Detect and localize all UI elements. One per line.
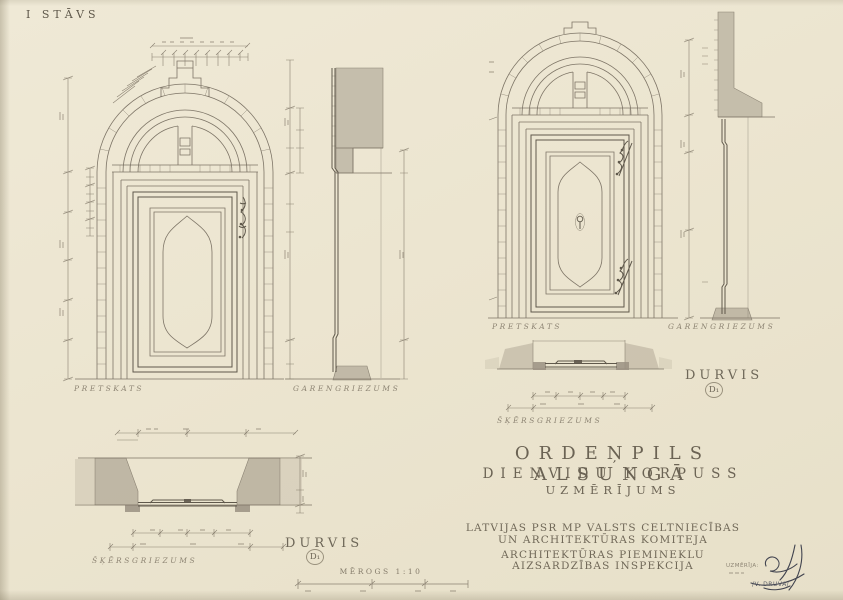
door2-section-label: GARENGRIEZUMS (668, 322, 775, 331)
signature-caption: UZMĒRĪJA: (726, 563, 759, 569)
right-door-elevation (488, 22, 694, 320)
door2-plan-label: ŠĶĒRSGRIEZUMS (497, 416, 602, 425)
left-door-elevation (75, 61, 284, 379)
door1-name-label: DURVIS (285, 536, 363, 551)
title-line2: DIENVIDU KORPUSS (432, 466, 794, 482)
right-door-plan (485, 340, 672, 412)
right-door-section (700, 12, 780, 320)
door1-handle-detail (240, 223, 243, 226)
linework-svg (0, 0, 843, 600)
scale-label: MĒROGS 1:10 (320, 567, 442, 576)
floor-label: I STĀVS (26, 8, 100, 21)
door2-elevation-label: PRETSKATS (492, 322, 562, 331)
door1-elevation-label: PRETSKATS (74, 384, 144, 393)
scale-bar (295, 579, 468, 589)
door1-handle-detail (239, 236, 242, 239)
keyhole-icon (577, 216, 583, 222)
door2-mark-badge: D₁ (705, 382, 723, 398)
left-door-section (285, 60, 409, 380)
door1-section-label: GARENGRIEZUMS (293, 384, 400, 393)
door1-plan-label: ŠĶĒRSGRIEZUMS (92, 556, 197, 565)
signature-name: /V. DRUVA/ (752, 581, 789, 588)
committee-line2: UN ARCHITEKTŪRAS KOMITEJA (427, 534, 779, 546)
door1-mark-badge: D₁ (306, 549, 324, 565)
committee-line1: LATVIJAS PSR MP VALSTS CELTNIECĪBAS (427, 522, 779, 534)
left-door-plan (75, 429, 312, 551)
door1-handle-detail (241, 209, 244, 212)
title-line3: UZMĒRĪJUMS (432, 483, 794, 497)
door2-name-label: DURVIS (685, 368, 763, 383)
drawing-sheet: I STĀVS PRETSKATS GARENGRIEZUMS ŠĶĒRSGRI… (0, 0, 843, 600)
